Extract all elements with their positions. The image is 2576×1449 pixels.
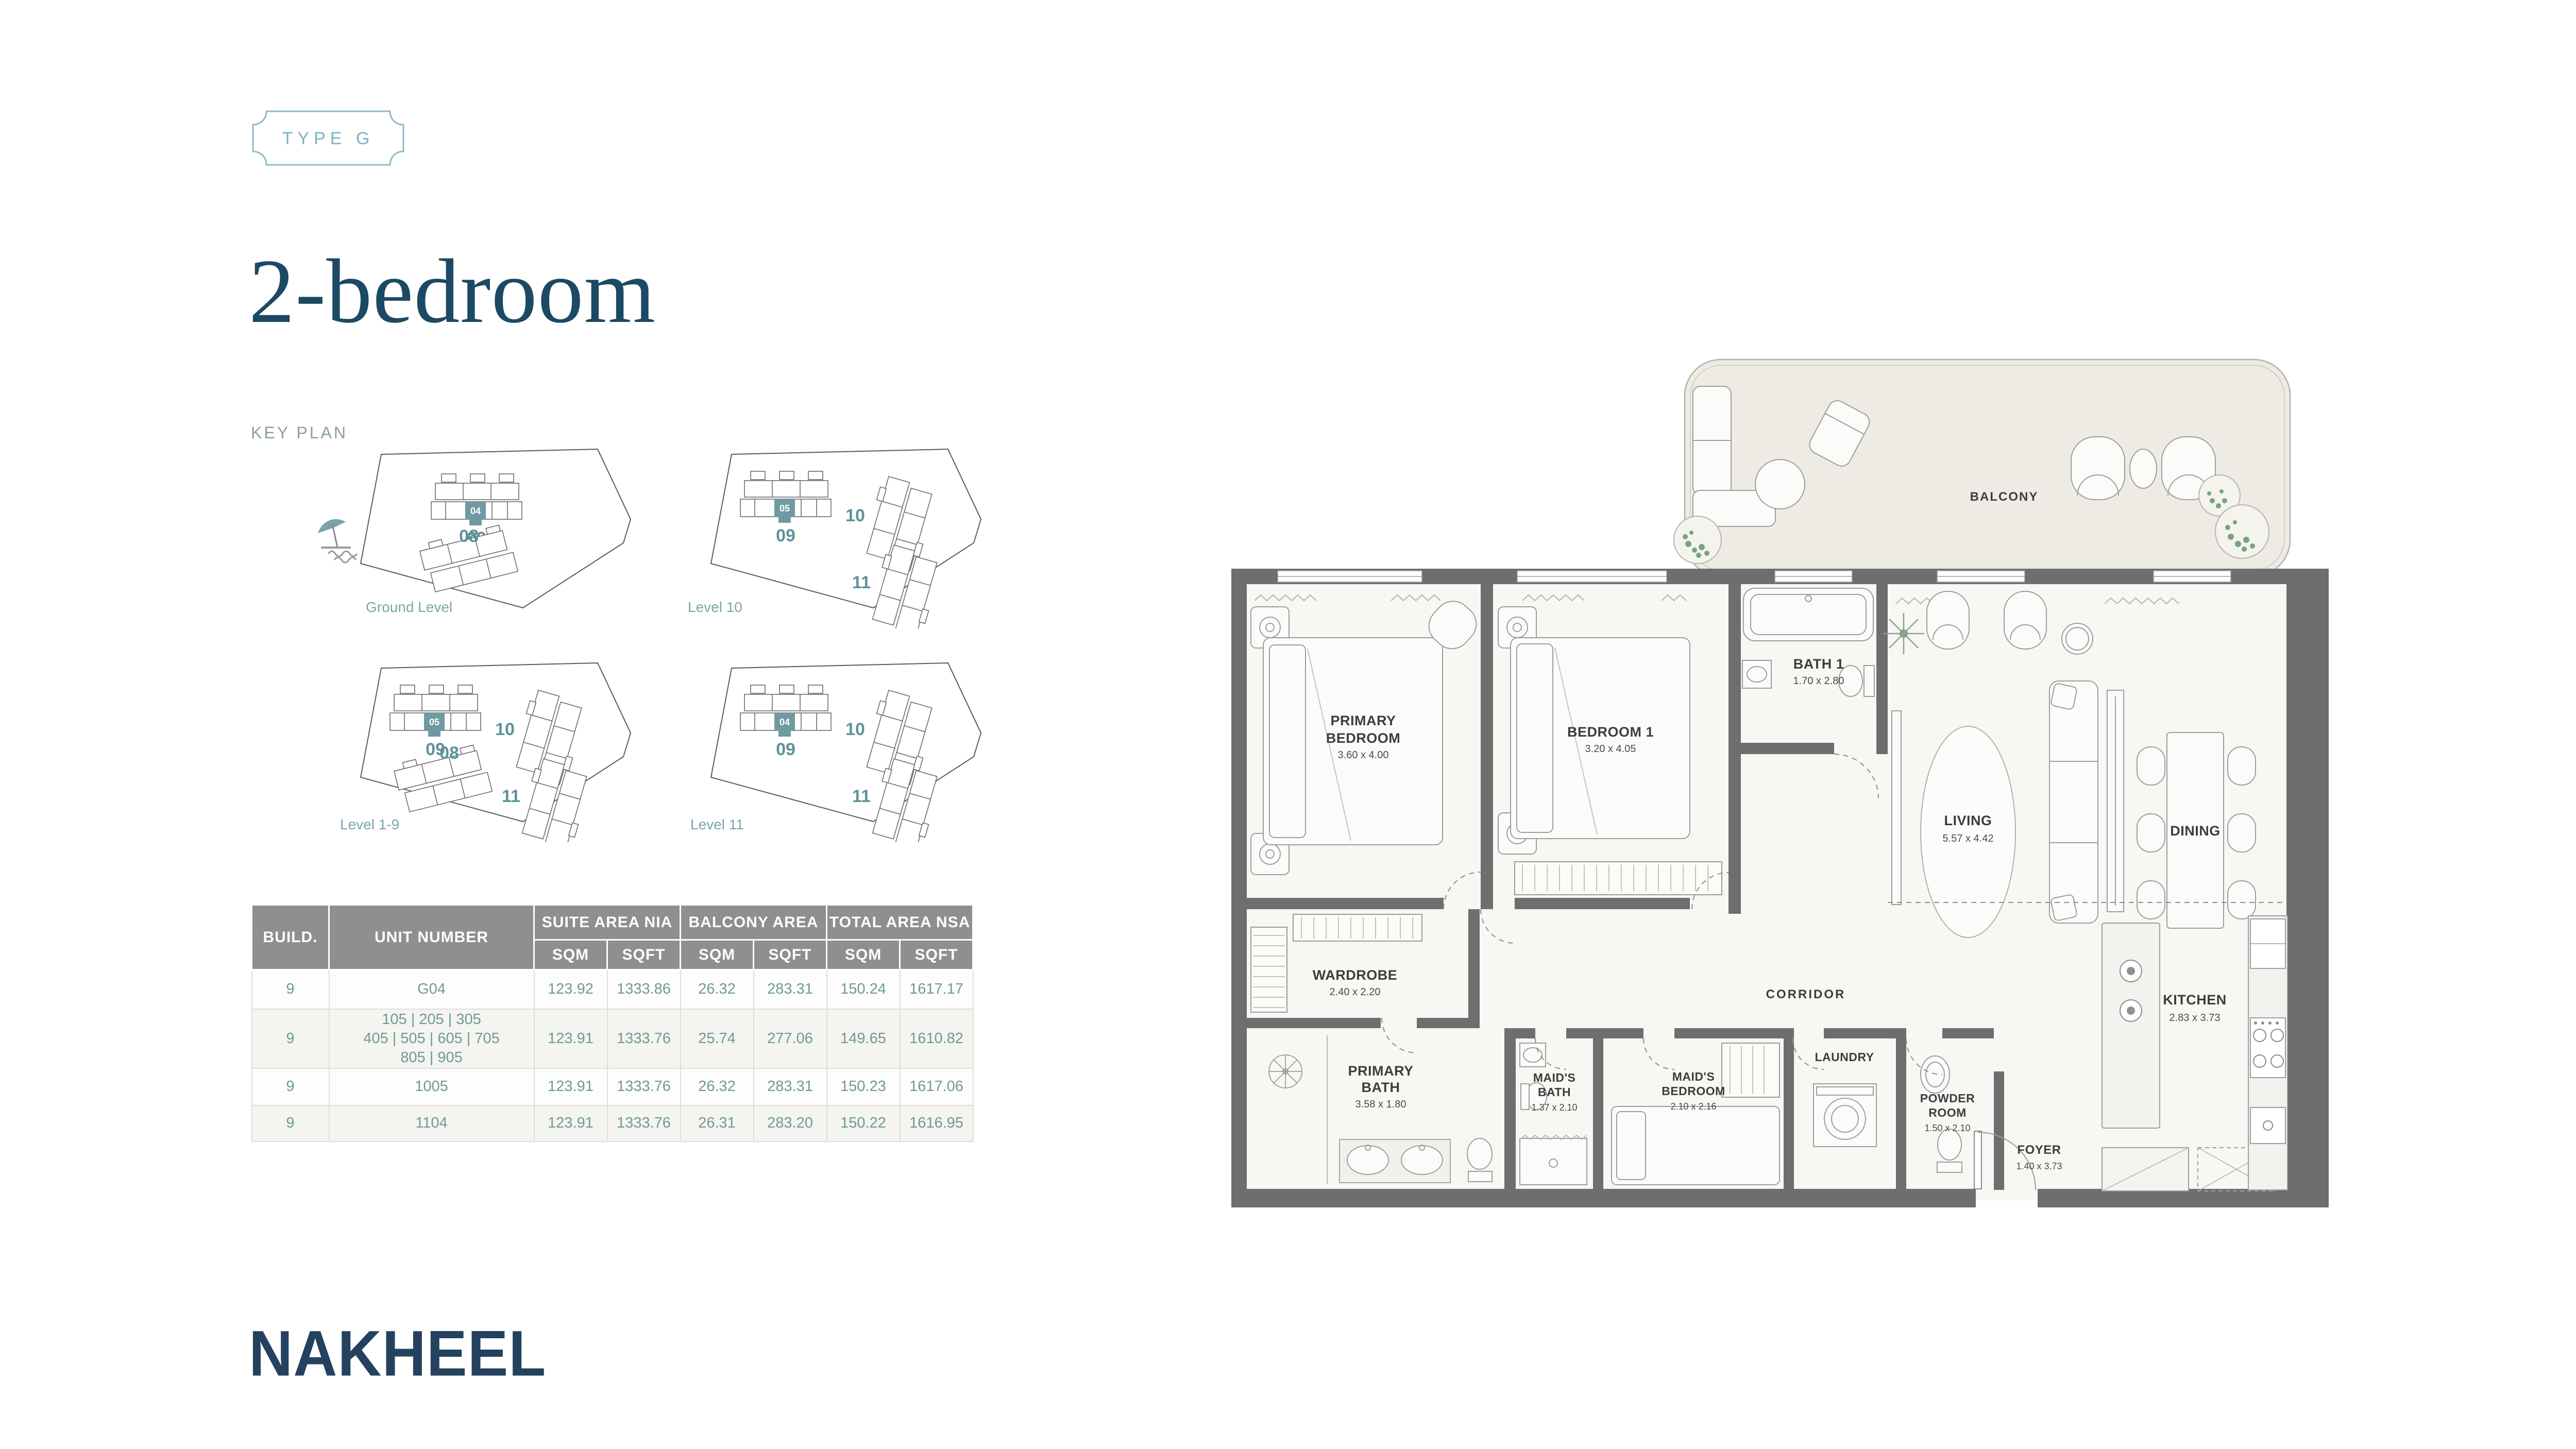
washer (1814, 1084, 1876, 1147)
room-dim: 3.60 x 4.00 (1338, 749, 1389, 761)
col-sqm: SQM (681, 940, 754, 970)
cell-suite-sqm: 123.91 (534, 1105, 607, 1141)
toilet (1467, 1138, 1492, 1169)
cell-suite-sqft: 1333.86 (607, 970, 681, 1009)
room-label: BEDROOM (1326, 730, 1401, 746)
room-dim: 2.40 x 2.20 (1330, 986, 1381, 998)
room-label: MAID'S (1533, 1071, 1576, 1084)
table-row: 9 105 | 205 | 305 405 | 505 | 605 | 705 … (252, 1009, 973, 1068)
cell-balcony-sqm: 26.31 (681, 1105, 754, 1141)
room-label: ROOM (1928, 1106, 1967, 1119)
closet (1515, 862, 1722, 895)
type-badge: TYPE G (251, 107, 405, 169)
entry-door-leaf (1974, 1131, 1981, 1189)
shower (1520, 1138, 1587, 1185)
room-label: DINING (2170, 823, 2221, 839)
col-sqm: SQM (827, 940, 900, 970)
cell-total-sqm: 150.24 (827, 970, 900, 1009)
plan-label: Level 1-9 (340, 816, 399, 832)
room-dim: 5.57 x 4.42 (1943, 833, 1994, 844)
cell-unit: G04 (329, 970, 534, 1009)
cell-suite-sqft: 1333.76 (607, 1009, 681, 1068)
beach-umbrella-icon (318, 519, 357, 562)
building-08-number: 08 (459, 526, 479, 546)
cell-total-sqft: 1610.82 (900, 1009, 973, 1068)
room-label: BEDROOM 1 (1567, 724, 1654, 740)
table-row: 9 1104 123.91 1333.76 26.31 283.20 150.2… (252, 1105, 973, 1141)
shower-rose (1269, 1055, 1302, 1088)
room-label: FOYER (2017, 1143, 2061, 1157)
cell-build: 9 (252, 1009, 329, 1068)
room-label: BATH (1538, 1085, 1571, 1099)
cell-total-sqm: 150.23 (827, 1068, 900, 1105)
col-sqft: SQFT (754, 940, 827, 970)
cell-unit: 1104 (329, 1105, 534, 1141)
building-09-number: 09 (776, 740, 795, 759)
cell-unit: 105 | 205 | 305 405 | 505 | 605 | 705 80… (329, 1009, 534, 1068)
plan-label: Level 10 (688, 599, 742, 615)
room-label: MAID'S (1672, 1070, 1715, 1083)
room-label: PRIMARY (1330, 713, 1396, 728)
col-balcony-area: BALCONY AREA (681, 905, 827, 940)
plant-star (1883, 613, 1924, 654)
table-row: 9 G04 123.92 1333.86 26.32 283.31 150.24… (252, 970, 973, 1009)
plant (1674, 516, 1721, 564)
room-label-corridor: CORRIDOR (1766, 987, 1846, 1001)
building-08-number: 08 (439, 743, 459, 763)
tv-unit (1892, 711, 1901, 905)
building-10-number: 10 (495, 720, 515, 739)
highlighted-unit-number: 04 (779, 717, 790, 727)
cell-balcony-sqft: 283.31 (754, 970, 827, 1009)
cell-balcony-sqft: 283.20 (754, 1105, 827, 1141)
highlighted-unit-number: 04 (470, 506, 481, 516)
balcony: BALCONY (1674, 360, 2290, 576)
page-title: 2-bedroom (249, 238, 656, 344)
building-09-number: 09 (776, 526, 795, 545)
room-label: PRIMARY (1348, 1063, 1413, 1079)
cell-suite-sqft: 1333.76 (607, 1105, 681, 1141)
building-11-number: 11 (502, 787, 520, 806)
area-table: BUILD. UNIT NUMBER SUITE AREA NIA BALCON… (251, 904, 974, 1142)
floor-plan: BALCONY (1226, 350, 2334, 1208)
cell-balcony-sqft: 283.31 (754, 1068, 827, 1105)
plan-label: Ground Level (366, 599, 452, 615)
col-sqm: SQM (534, 940, 607, 970)
room-label-balcony: BALCONY (1970, 490, 2039, 504)
sofa (2049, 681, 2098, 923)
room-dim: 1.50 x 2.10 (1924, 1123, 1970, 1133)
room-dim: 1.40 x 3.73 (2016, 1161, 2062, 1171)
toilet (1938, 1129, 1961, 1160)
key-plan-ground-level: 04 09 08 Ground Level (289, 433, 649, 628)
cell-total-sqft: 1617.17 (900, 970, 973, 1009)
room-dim: 1.70 x 2.80 (1793, 675, 1844, 687)
highlighted-unit-number: 05 (779, 503, 790, 514)
bathtub (1743, 588, 1873, 641)
col-suite-area: SUITE AREA NIA (534, 905, 681, 940)
badge-label: TYPE G (282, 129, 375, 148)
cell-total-sqft: 1616.95 (900, 1105, 973, 1141)
room-label: LAUNDRY (1815, 1050, 1874, 1064)
cell-suite-sqft: 1333.76 (607, 1068, 681, 1105)
cell-build: 9 (252, 1105, 329, 1141)
cell-total-sqm: 150.22 (827, 1105, 900, 1141)
building-11-number: 11 (852, 573, 871, 592)
cell-balcony-sqm: 25.74 (681, 1009, 754, 1068)
bed (1612, 1106, 1780, 1185)
stove (2250, 1018, 2285, 1078)
room-dim: 3.58 x 1.80 (1355, 1099, 1406, 1110)
room-label: LIVING (1944, 813, 1992, 828)
col-unit-number: UNIT NUMBER (329, 905, 534, 970)
rug (1921, 726, 2015, 937)
key-plan-level-1-9: 05 09 10 08 11 Level 1-9 (289, 646, 649, 842)
sink (1921, 1056, 1950, 1093)
nakheel-logo: NAKHEEL (249, 1317, 546, 1391)
room-label: POWDER (1920, 1092, 1975, 1105)
kitchen-sink (2250, 1107, 2285, 1144)
plan-label: Level 11 (690, 816, 744, 832)
page: { "badge": {"label": "TYPE G"}, "title":… (0, 0, 2576, 1449)
building-11-number: 11 (852, 787, 871, 806)
dining: DINING (2137, 732, 2256, 928)
building-10-number: 10 (845, 506, 865, 525)
cell-build: 9 (252, 1068, 329, 1105)
room-label: BEDROOM (1662, 1084, 1725, 1098)
cell-unit: 1005 (329, 1068, 534, 1105)
plant (2215, 505, 2269, 558)
room-dim: 2.10 x 2.16 (1670, 1101, 1716, 1112)
col-build: BUILD. (252, 905, 329, 970)
room-label: KITCHEN (2163, 992, 2227, 1008)
arch-chair (2004, 591, 2046, 649)
col-sqft: SQFT (900, 940, 973, 970)
room-dim: 3.20 x 4.05 (1585, 743, 1636, 755)
kitchen-island (2102, 923, 2160, 1128)
col-sqft: SQFT (607, 940, 681, 970)
cell-suite-sqm: 123.92 (534, 970, 607, 1009)
table-row: 9 1005 123.91 1333.76 26.32 283.31 150.2… (252, 1068, 973, 1105)
room-dim: 1.37 x 2.10 (1531, 1102, 1577, 1113)
cell-total-sqft: 1617.06 (900, 1068, 973, 1105)
room-dim: 2.83 x 3.73 (2170, 1012, 2221, 1024)
cell-suite-sqm: 123.91 (534, 1068, 607, 1105)
key-plan-level-11: 04 09 10 11 Level 11 (639, 646, 999, 842)
arch-chair (1927, 591, 1969, 649)
cell-build: 9 (252, 970, 329, 1009)
cell-total-sqm: 149.65 (827, 1009, 900, 1068)
col-total-area: TOTAL AREA NSA (827, 905, 973, 940)
cell-suite-sqm: 123.91 (534, 1009, 607, 1068)
key-plan-level-10: 05 09 10 11 Level 10 (639, 433, 999, 628)
highlighted-unit-number: 05 (429, 717, 439, 727)
cell-balcony-sqft: 277.06 (754, 1009, 827, 1068)
room-label: WARDROBE (1313, 967, 1398, 983)
cell-balcony-sqm: 26.32 (681, 970, 754, 1009)
cell-balcony-sqm: 26.32 (681, 1068, 754, 1105)
building-10-number: 10 (845, 720, 865, 739)
room-label: BATH 1 (1793, 656, 1844, 672)
balcony-round-table (1755, 459, 1805, 509)
room-label: BATH (1362, 1080, 1400, 1095)
